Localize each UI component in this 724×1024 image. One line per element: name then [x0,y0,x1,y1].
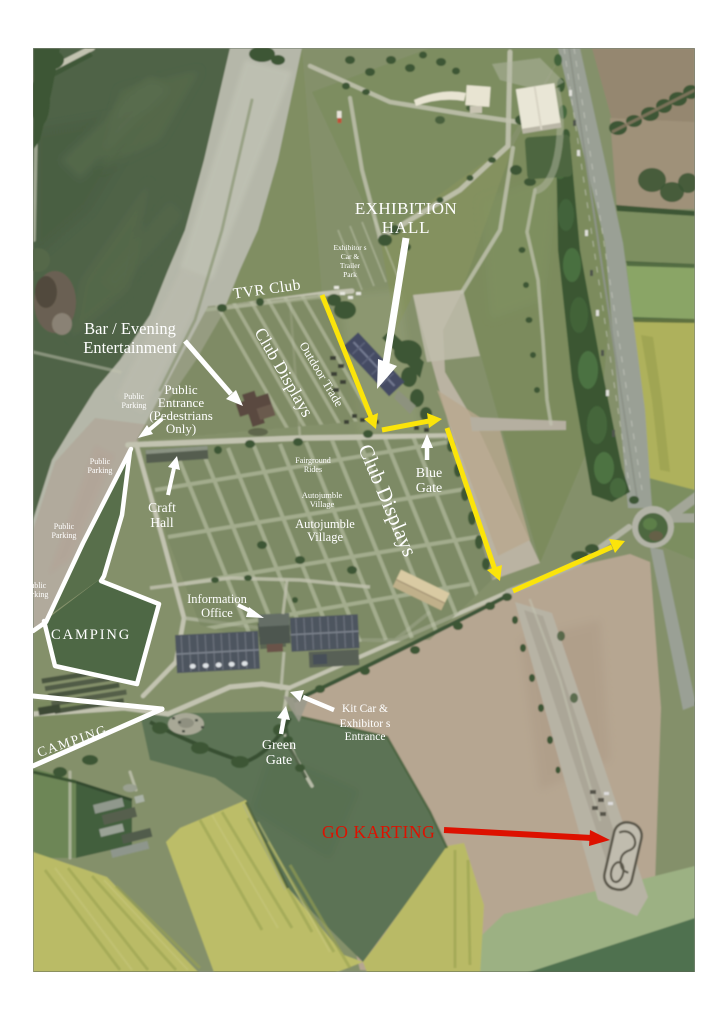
svg-text:Trailer: Trailer [340,261,361,270]
svg-text:Hall: Hall [150,515,173,530]
svg-text:Parking: Parking [52,531,77,540]
svg-text:Office: Office [201,606,233,620]
svg-text:Gate: Gate [266,753,292,768]
svg-text:Public: Public [124,392,145,401]
svg-text:Only): Only) [166,421,196,436]
svg-text:Village: Village [307,530,343,544]
svg-text:Entrance: Entrance [345,731,386,743]
svg-text:Public: Public [54,522,75,531]
svg-text:Fairground: Fairground [295,456,330,465]
svg-text:Green: Green [262,738,296,753]
svg-text:Autojumble: Autojumble [295,517,355,531]
svg-text:EXHIBITION: EXHIBITION [355,199,457,218]
svg-text:Rides: Rides [304,465,322,474]
svg-text:Park: Park [343,270,357,279]
svg-text:Parking: Parking [24,590,49,599]
svg-text:Kit Car &: Kit Car & [342,703,388,715]
svg-text:Craft: Craft [148,500,176,515]
svg-text:Exhibitor s: Exhibitor s [340,718,391,730]
svg-text:Information: Information [187,592,247,606]
svg-text:GO KARTING: GO KARTING [322,822,435,842]
svg-text:Public: Public [26,581,47,590]
svg-text:Public: Public [90,457,111,466]
svg-text:Bar / Evening: Bar / Evening [84,319,176,338]
svg-text:CAMPING: CAMPING [51,627,131,643]
svg-text:Car &: Car & [341,252,360,261]
svg-text:Entertainment: Entertainment [83,338,177,357]
svg-text:Village: Village [310,499,335,509]
svg-text:Blue: Blue [416,466,442,481]
svg-text:Parking: Parking [122,401,147,410]
svg-text:Parking: Parking [88,466,113,475]
svg-text:Exhibitor s: Exhibitor s [333,243,366,252]
svg-text:HALL: HALL [382,218,431,237]
svg-text:Gate: Gate [416,481,442,496]
